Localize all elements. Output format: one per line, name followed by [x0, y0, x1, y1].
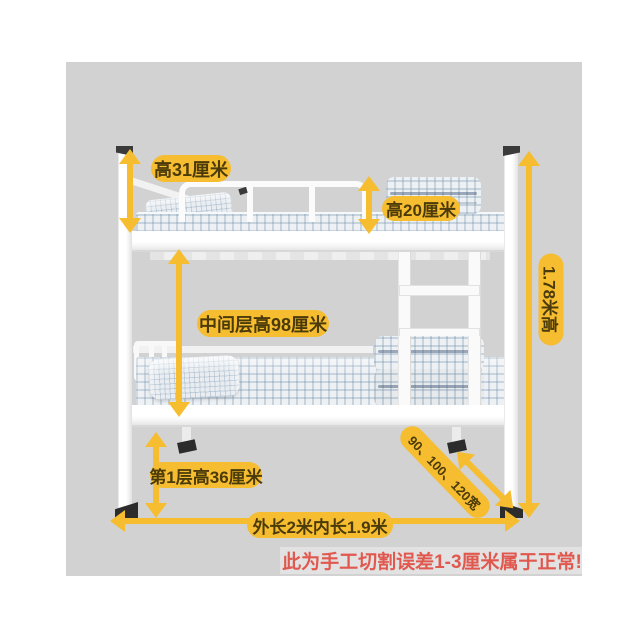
guardrail-divider: [309, 187, 315, 222]
top-bunk-underside-slats: [150, 252, 490, 260]
lower-bunk-pillow: [148, 355, 240, 401]
blanket-fold-line: [378, 350, 479, 353]
ladder-right-rail-front: [468, 336, 481, 407]
dim-arrow-bedding-height: [358, 176, 380, 234]
dim-label-bedding-height: 高20厘米: [382, 196, 460, 221]
dim-label-length: 外长2米内长1.9米: [247, 512, 393, 538]
dim-arrow-guardrail-height: [119, 149, 141, 233]
dim-arrow-middle-clearance: [168, 249, 190, 417]
blanket-fold-line: [390, 192, 477, 195]
right-post: [504, 148, 518, 518]
blanket-fold-line: [378, 385, 479, 388]
top-bunk-guardrail: [179, 181, 368, 222]
dim-arrow-total-height: [518, 151, 540, 518]
product-dimension-diagram: { "colors": { "stage_bg": "#d2d2d2", "la…: [0, 0, 640, 640]
dim-label-middle-clearance: 中间层高98厘米: [197, 310, 329, 337]
dim-label-guardrail-height: 高31厘米: [151, 155, 231, 182]
dim-label-total-height: 1.78米高: [539, 254, 564, 346]
ladder-rung: [399, 285, 480, 296]
ladder-left-rail-front: [398, 336, 411, 407]
dim-label-first-layer-height: 第1层高36厘米: [150, 462, 262, 488]
warning-text: 此为手工切割误差1-3厘米属于正常!: [282, 548, 582, 573]
